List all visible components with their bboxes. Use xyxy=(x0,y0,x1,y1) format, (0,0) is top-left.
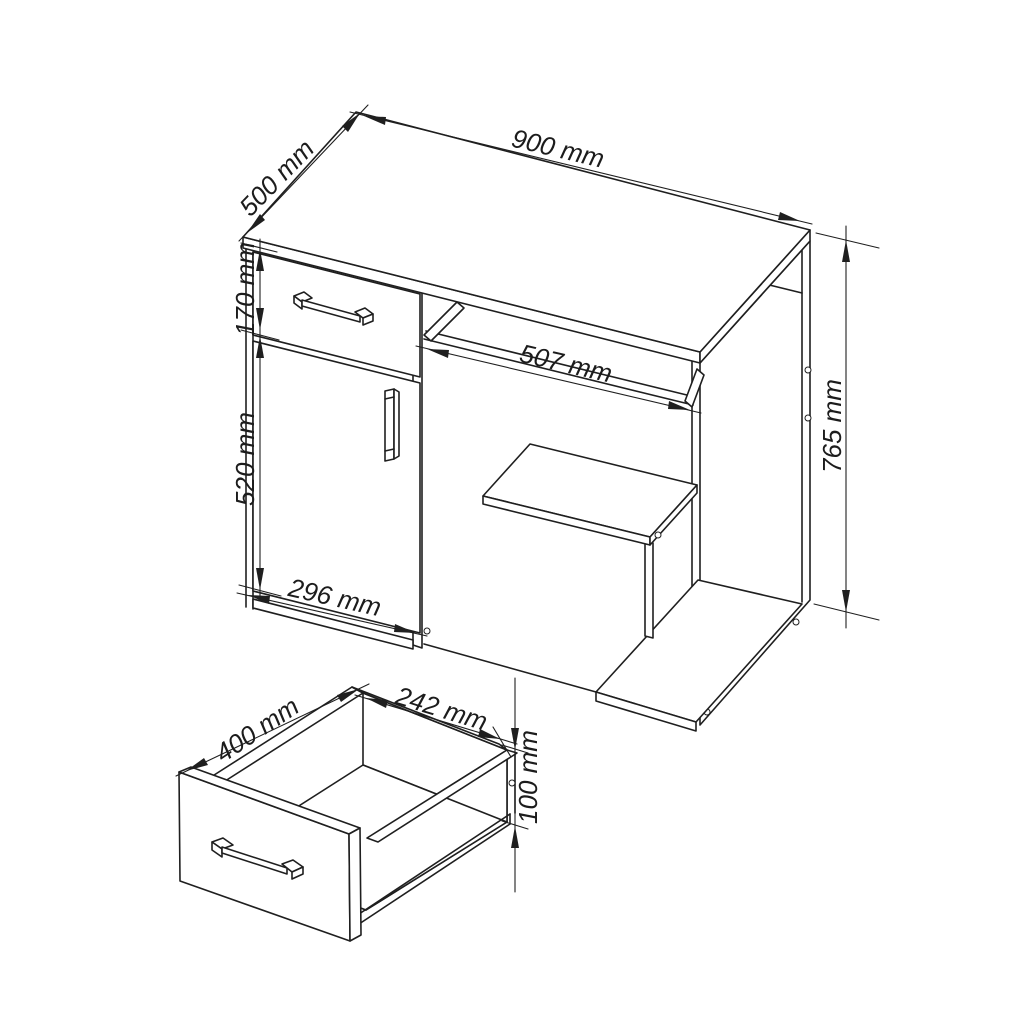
arrowhead xyxy=(778,212,800,221)
arrowhead xyxy=(842,240,850,262)
cam-hole xyxy=(424,628,430,634)
dim-overall-height-label: 765 mm xyxy=(817,379,847,473)
drawing-canvas: 900 mm 500 mm 170 mm 520 mm 296 mm xyxy=(0,0,1024,1024)
arrowhead xyxy=(842,590,850,612)
technical-drawing: 900 mm 500 mm 170 mm 520 mm 296 mm xyxy=(0,0,1024,1024)
drawer-view: 400 mm 242 mm 100 mm xyxy=(176,678,543,941)
dim-door-height-label: 520 mm xyxy=(230,412,260,506)
arrowhead xyxy=(511,826,519,848)
cam-hole xyxy=(655,532,661,538)
shelf-support xyxy=(645,541,653,638)
dim-overall-height: 765 mm xyxy=(814,226,879,628)
door-handle-side xyxy=(394,389,399,459)
floor-edge-line xyxy=(424,644,596,692)
arrowhead xyxy=(427,349,449,358)
dim-drawer-height-label: 100 mm xyxy=(513,730,543,824)
bottom-panel xyxy=(596,580,802,731)
front-panel-right-face xyxy=(349,828,361,941)
cam-hole xyxy=(805,415,811,421)
cam-hole xyxy=(805,367,811,373)
dim-drawer-depth: 400 mm xyxy=(176,684,369,776)
witness-line xyxy=(816,233,879,248)
dim-drawer-height: 100 mm xyxy=(502,678,543,892)
desk-view: 900 mm 500 mm 170 mm 520 mm 296 mm xyxy=(230,105,879,731)
cam-hole xyxy=(793,619,799,625)
pc-shelf xyxy=(483,444,697,545)
dim-drawer-front-height-label: 170 mm xyxy=(230,242,260,336)
door-handle xyxy=(385,389,399,461)
